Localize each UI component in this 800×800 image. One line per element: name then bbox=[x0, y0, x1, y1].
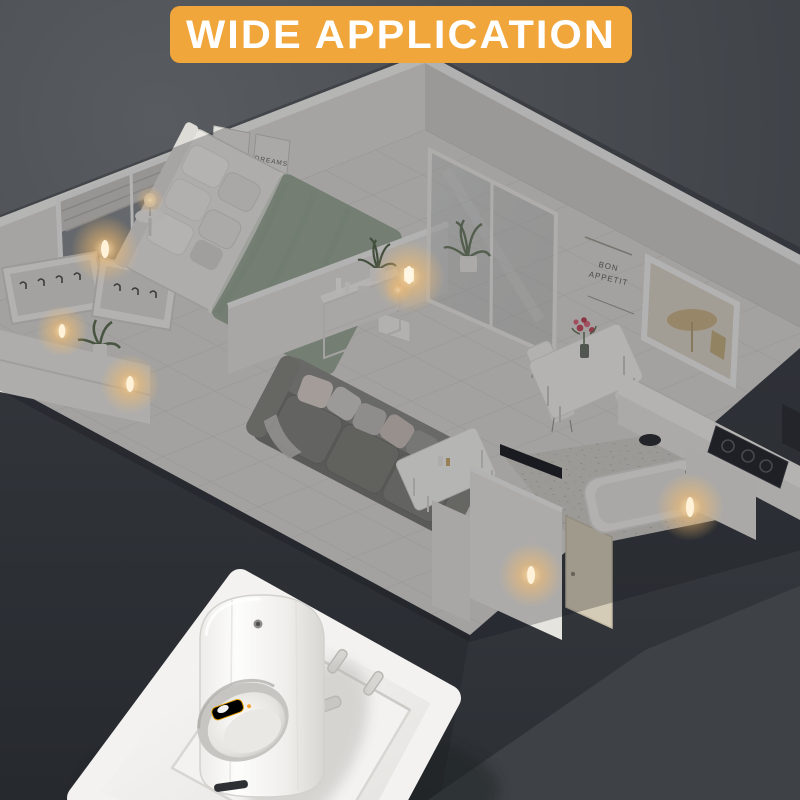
night-light-product bbox=[184, 595, 324, 797]
night-light-glow-closet-1 bbox=[36, 305, 88, 357]
product-marketing-image: SWEET DREAMS BON APPETIT bbox=[0, 0, 800, 800]
banner: WIDE APPLICATION bbox=[170, 6, 632, 63]
lamp-glow bbox=[384, 276, 412, 304]
night-light-glow-hallway bbox=[499, 543, 563, 607]
night-light-glow-bedroom bbox=[71, 215, 139, 283]
night-light-glow-bathroom bbox=[656, 473, 724, 541]
banner-title: WIDE APPLICATION bbox=[186, 13, 616, 57]
scene-svg: SWEET DREAMS BON APPETIT bbox=[0, 0, 800, 800]
night-light-glow-living bbox=[373, 241, 445, 313]
lamp-glow bbox=[136, 186, 164, 214]
night-light-glow-closet-2 bbox=[100, 354, 160, 414]
